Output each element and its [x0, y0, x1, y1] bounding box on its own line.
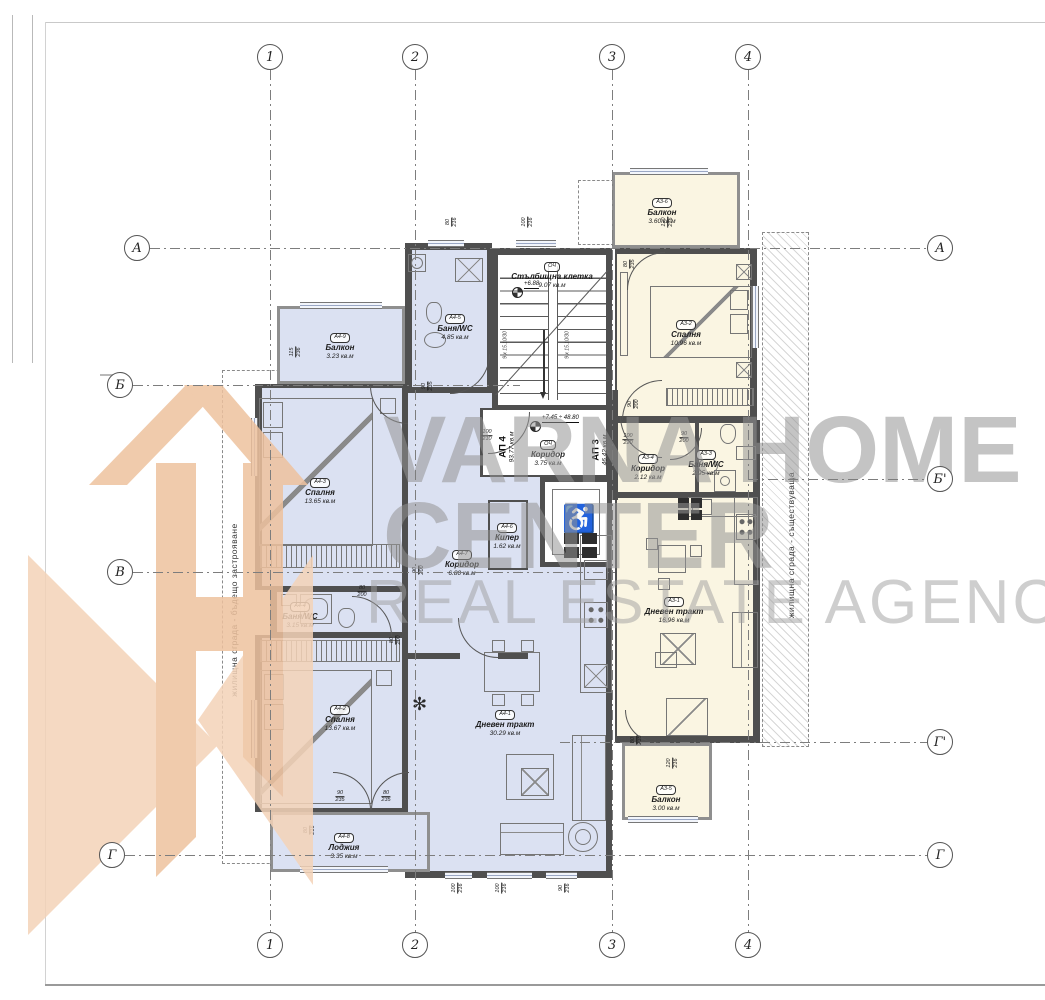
window — [445, 872, 472, 879]
room-label: А4-4Баня/WC3.15 кв.м — [252, 594, 348, 630]
room-area: 4.85 кв.м — [407, 334, 503, 342]
dimension-height: 216 — [453, 217, 459, 226]
room-name: Стълбищна клетка — [504, 272, 600, 282]
stove — [736, 514, 756, 540]
room-code-badge: А4-6 — [497, 523, 517, 533]
table — [658, 545, 686, 573]
dashed-detail-box — [578, 180, 614, 245]
grid-axis-marker: 3 — [599, 932, 625, 958]
pillow — [264, 704, 284, 730]
room-code-badge: ОЧ — [544, 262, 560, 272]
fridge — [584, 664, 608, 688]
room-label: А4-1Дневен тракт30.29 кв.м — [457, 702, 553, 738]
shower — [455, 258, 483, 282]
dimension-height: 216 — [503, 883, 509, 892]
dimension-height: 216 — [311, 825, 317, 834]
dimension-width: 120 — [661, 216, 668, 227]
dimension-height: 216 — [529, 217, 535, 226]
coffee-table — [521, 768, 549, 796]
dimension-label: 80200 — [357, 585, 366, 599]
kitchen-counter — [734, 497, 758, 585]
dimension-label: 80235 — [623, 259, 637, 268]
dimension-label: 115236 — [289, 347, 303, 358]
window — [251, 700, 258, 758]
room-code-badge: А4-4 — [290, 602, 310, 612]
dimension-height: 235 — [429, 381, 435, 390]
room-code-badge: А3-4 — [638, 454, 658, 464]
side-note-future-building: жилищна сграда - бъдещо застрояване — [230, 523, 239, 696]
grid-axis-marker: Г — [99, 842, 125, 868]
dimension-height: 220 — [623, 441, 632, 447]
armchair — [655, 652, 677, 668]
dimension-width: 90 — [335, 790, 344, 797]
sofa — [666, 698, 708, 736]
room-code-badge: А3-5 — [656, 785, 676, 795]
dimension-height: 216 — [674, 758, 680, 767]
dimension-label: 90235 — [421, 381, 435, 390]
dimension-height: 200 — [635, 399, 641, 408]
room-name: Баня/WC — [252, 612, 348, 622]
room-name: Баня/WC — [658, 460, 754, 470]
dimension-width: 100 — [451, 882, 458, 893]
dimension-height: 200 — [420, 565, 426, 574]
room-code-badge: А4-9 — [330, 333, 350, 343]
room-name: Лоджия — [296, 843, 392, 853]
room-name: Спалня — [272, 488, 368, 498]
appliance — [691, 498, 702, 508]
wardrobe — [260, 544, 400, 568]
dimension-width: 80 — [389, 635, 396, 644]
room-area: 30.29 кв.м — [457, 730, 553, 738]
dimension-label: 90235 — [335, 790, 344, 804]
frame-bottom-line — [45, 984, 1045, 986]
room-area: 2.95 кв.м — [658, 470, 754, 478]
side-note-existing-building: жилищна сграда - съществуваща — [787, 472, 796, 618]
window — [516, 240, 556, 247]
stair-direction-arrow — [543, 330, 545, 392]
room-name: Дневен тракт — [457, 720, 553, 730]
dimension-height: 200 — [357, 593, 366, 599]
apartment-area: 93.77 кв.м — [509, 432, 517, 463]
grid-line-vertical — [748, 70, 749, 932]
dimension-label: 80216 — [303, 825, 317, 834]
dimension-label: 100216 — [495, 882, 509, 893]
pillow — [264, 674, 284, 700]
grid-line-vertical — [612, 70, 613, 932]
sofa — [572, 735, 606, 821]
room-label: ОЧСтълбищна клетка9.07 кв.м — [504, 254, 600, 290]
dimension-label: 80216 — [445, 217, 459, 226]
room-label: А4-5Баня/WC4.85 кв.м — [407, 306, 503, 342]
dimension-height: 200 — [397, 635, 403, 644]
grid-axis-marker: 1 — [257, 44, 283, 70]
dimension-height: 216 — [566, 883, 572, 892]
room-code-badge: А4-7 — [452, 550, 472, 560]
room-area: 1.62 кв.м — [459, 543, 555, 551]
pillow — [263, 432, 283, 458]
room-code-badge: А4-8 — [334, 833, 354, 843]
room-name: Коридор — [414, 560, 510, 570]
dimension-label: 80235 — [630, 735, 644, 744]
dimension-height: 235 — [631, 259, 637, 268]
dimension-width: 80 — [623, 259, 630, 268]
level-mark-symbol — [530, 421, 541, 432]
grid-line-horizontal — [748, 479, 927, 480]
room-label: А3-3Баня/WC2.95 кв.м — [658, 442, 754, 478]
appliance — [564, 547, 579, 558]
window — [300, 302, 382, 309]
room-code-badge: А4-3 — [310, 478, 330, 488]
dimension-label: 80235 — [381, 790, 390, 804]
window — [752, 286, 759, 348]
dimension-width: 100 — [622, 433, 633, 440]
room-name: Килер — [459, 533, 555, 543]
grid-axis-marker: Г' — [927, 729, 953, 755]
window — [630, 168, 708, 175]
washing-machine-drum — [411, 257, 423, 269]
wardrobe — [666, 388, 754, 406]
room-code-badge: А4-5 — [445, 314, 465, 324]
grid-line-horizontal — [150, 248, 927, 249]
dimension-width: 80 — [381, 790, 390, 797]
dimension-width: 80 — [357, 585, 366, 592]
wheelchair-icon: ♿ — [562, 506, 596, 533]
dimension-width: 115 — [289, 347, 296, 358]
grid-line-vertical — [270, 70, 271, 932]
sheet-edge-line — [12, 15, 13, 363]
grid-line-horizontal — [560, 742, 927, 743]
grid-axis-marker: 2 — [402, 932, 428, 958]
dimension-width: 100 — [521, 216, 528, 227]
grid-axis-marker: Б — [107, 372, 133, 398]
dimension-width: 120 — [666, 757, 673, 768]
wardrobe — [260, 640, 400, 662]
room-code-badge: А3-1 — [664, 597, 684, 607]
dimension-height: 210 — [482, 437, 491, 443]
window — [251, 418, 258, 476]
sofa — [500, 823, 564, 855]
room-area: 16.96 кв.м — [626, 617, 722, 625]
dimension-height: 216 — [459, 883, 465, 892]
room-code-badge: А3-2 — [676, 320, 696, 330]
grid-axis-marker: 4 — [735, 932, 761, 958]
room-area: 3.00 кв.м — [618, 805, 714, 813]
stair-arrow-head — [540, 392, 546, 399]
room-code-badge: ОЧ — [540, 440, 556, 450]
dimension-label: 100216 — [451, 882, 465, 893]
dimension-label: 120216 — [666, 757, 680, 768]
room-label: А4-6Килер1.62 кв.м — [459, 515, 555, 551]
dimension-label: 120216 — [661, 216, 675, 227]
dimension-width: 90 — [558, 883, 565, 892]
room-label: А3-2Спалня10.96 кв.м — [638, 312, 734, 348]
grid-axis-marker: Б' — [927, 466, 953, 492]
apartment-label: АП 346.42 кв.м — [590, 435, 609, 466]
dimension-height: 236 — [297, 347, 303, 356]
room-name: Дневен тракт — [626, 607, 722, 617]
armchair-round-inner — [575, 829, 591, 845]
wall-stub — [405, 653, 460, 659]
chair — [521, 640, 534, 652]
apartment-area: 46.42 кв.м — [602, 435, 610, 466]
stair-note: 9 х 15.10/30 — [566, 331, 571, 359]
room-label: А3-1Дневен тракт16.96 кв.м — [626, 589, 722, 625]
appliance — [678, 498, 689, 508]
nightstand — [736, 264, 752, 280]
appliance — [564, 533, 579, 544]
window — [428, 240, 464, 247]
grid-line-vertical — [415, 70, 416, 932]
dimension-label: 100210 — [481, 429, 492, 443]
dimension-width: 90 — [679, 431, 688, 438]
dimension-width: 80 — [303, 825, 310, 834]
window — [628, 816, 698, 823]
dimension-label: 90200 — [679, 431, 688, 445]
appliance — [582, 547, 597, 558]
appliance — [691, 510, 702, 520]
room-area: 13.65 кв.м — [272, 498, 368, 506]
room-label: А3-5Балкон3.00 кв.м — [618, 777, 714, 813]
dimension-label: 80200 — [389, 635, 403, 644]
dimension-height: 216 — [669, 217, 675, 226]
level-mark-symbol — [512, 287, 523, 298]
apartment-label: АП 493.77 кв.м — [497, 432, 516, 463]
dimension-height: 200 — [679, 439, 688, 445]
stove — [584, 602, 608, 628]
toilet — [720, 424, 736, 444]
dimension-label: 90200 — [627, 399, 641, 408]
grid-axis-marker: А — [124, 235, 150, 261]
wall-stub — [498, 653, 528, 659]
pillow — [263, 402, 283, 428]
dimension-width: 100 — [481, 429, 492, 436]
grid-axis-marker: В — [107, 559, 133, 585]
dimension-height: 235 — [381, 798, 390, 804]
grid-axis-marker: 3 — [599, 44, 625, 70]
room-name: Балкон — [618, 795, 714, 805]
room-name: Спалня — [292, 715, 388, 725]
room-code-badge: А3-6 — [652, 198, 672, 208]
kitchen-sink — [584, 560, 608, 580]
room-label: А4-3Спалня13.65 кв.м — [272, 470, 368, 506]
window — [546, 872, 577, 879]
room-area: 13.67 кв.м — [292, 725, 388, 733]
level-mark-text: +7.45 ÷ 48.80 — [542, 415, 579, 423]
grid-line-horizontal — [133, 385, 520, 386]
dimension-width: 80 — [630, 735, 637, 744]
room-code-badge: А4-1 — [495, 710, 515, 720]
dimension-width: 80 — [445, 217, 452, 226]
dimension-width: 100 — [495, 882, 502, 893]
dimension-width: 90 — [627, 399, 634, 408]
sofa — [732, 612, 758, 668]
stair-note: 9 х 15.10/30 — [504, 331, 509, 359]
dimension-label: 90216 — [558, 883, 572, 892]
level-mark-text: +6.88 — [524, 281, 539, 289]
room-name: Балкон — [292, 343, 388, 353]
room-area: 3.15 кв.м — [252, 622, 348, 630]
grid-axis-marker: Г — [927, 842, 953, 868]
dimension-label: 100220 — [622, 433, 633, 447]
floor-plan-sheet: ♿ — [0, 0, 1045, 1000]
frame-top-line — [45, 22, 1045, 23]
apartment-id: АП 4 — [497, 432, 508, 463]
grid-line-horizontal — [125, 855, 927, 856]
chair — [646, 538, 658, 550]
window — [300, 866, 388, 873]
room-name: Спалня — [638, 330, 734, 340]
dimension-width: 90 — [421, 381, 428, 390]
nightstand — [736, 362, 752, 378]
grid-axis-marker: А — [927, 235, 953, 261]
room-area: 3.23 кв.м — [292, 353, 388, 361]
pillow — [730, 290, 748, 310]
grid-axis-marker: 4 — [735, 44, 761, 70]
room-name: Баня/WC — [407, 324, 503, 334]
window — [487, 872, 532, 879]
appliance — [582, 533, 597, 544]
grid-line-horizontal — [133, 572, 615, 573]
dimension-height: 235 — [335, 798, 344, 804]
frame-left-line — [45, 22, 46, 985]
sheet-edge-line — [32, 15, 33, 363]
room-label: А4-2Спалня13.67 кв.м — [292, 697, 388, 733]
dimension-height: 235 — [638, 735, 644, 744]
room-code-badge: А3-3 — [696, 450, 716, 460]
chair — [690, 545, 702, 557]
appliance — [678, 510, 689, 520]
grid-axis-marker: 2 — [402, 44, 428, 70]
apartment-id: АП 3 — [590, 435, 601, 466]
room-label: А4-9Балкон3.23 кв.м — [292, 325, 388, 361]
room-area: 10.96 кв.м — [638, 340, 734, 348]
room-code-badge: А4-2 — [330, 705, 350, 715]
grid-axis-marker: 1 — [257, 932, 283, 958]
dimension-label: 100216 — [521, 216, 535, 227]
nightstand — [376, 670, 392, 686]
